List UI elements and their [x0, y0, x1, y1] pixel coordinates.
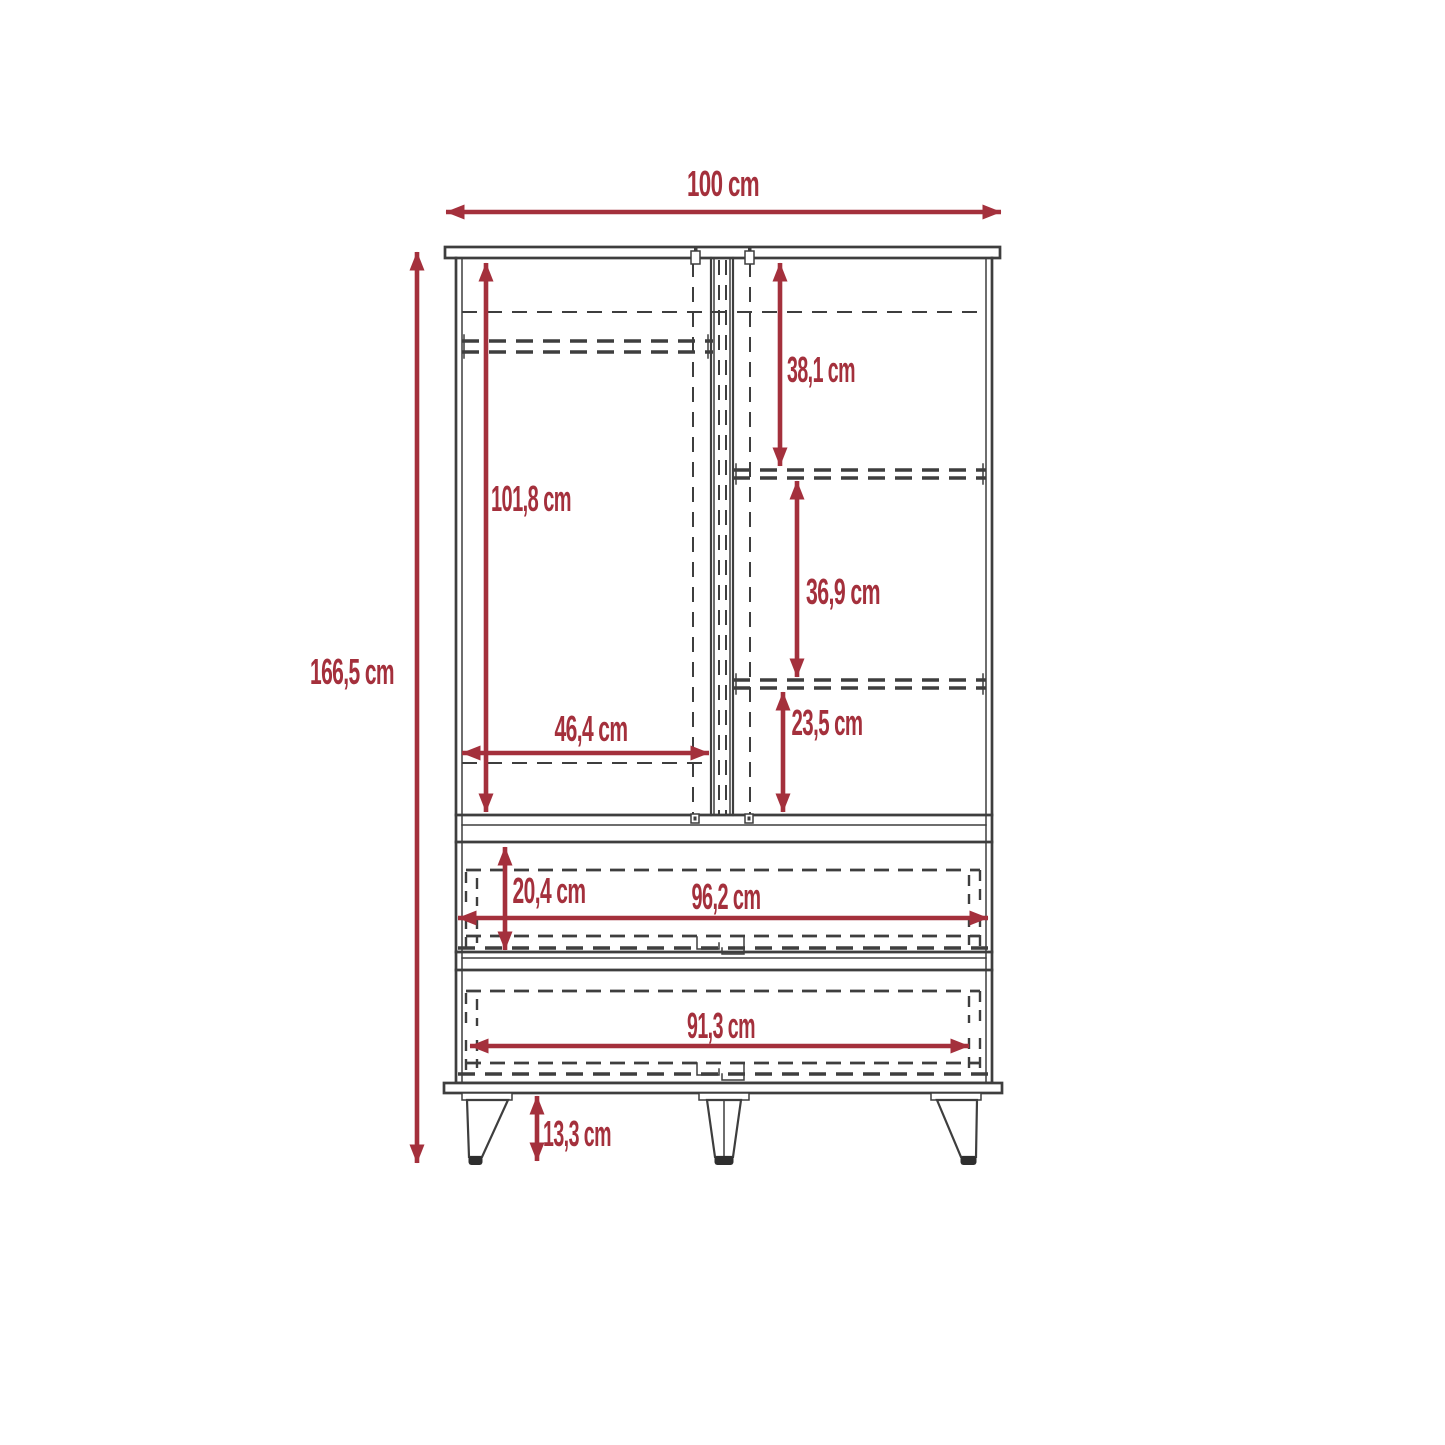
drawer-slide-icon — [722, 1063, 744, 1080]
right-shelf-lower — [733, 674, 986, 694]
right-shelf-upper — [733, 464, 986, 484]
dim-drawer-opening-width-label: 96,2 cm — [692, 876, 761, 917]
top-panel — [445, 247, 1000, 258]
doors-section — [462, 246, 986, 823]
dim-total-height-label: 166,5 cm — [310, 651, 394, 692]
leg-left — [467, 1100, 508, 1157]
dim-door-interior-height-label: 101,8 cm — [491, 478, 571, 519]
dim-upper-right-shelf-height: 38,1 cm — [780, 263, 855, 466]
dim-drawer-height: 20,4 cm — [505, 847, 586, 950]
dim-middle-right-shelf-height-label: 36,9 cm — [806, 571, 880, 612]
hanging-rod — [462, 335, 713, 358]
diagram-canvas: 100 cm 166,5 cm 101,8 cm 38,1 cm 36,9 cm… — [0, 0, 1445, 1445]
dim-upper-right-shelf-height-label: 38,1 cm — [787, 349, 855, 390]
hinge-bottom-right — [745, 814, 753, 823]
leg-foot-right — [961, 1156, 977, 1165]
dim-lower-drawer-front-width-label: 91,3 cm — [687, 1005, 755, 1046]
leg-right — [937, 1100, 977, 1157]
furniture-dimension-diagram: 100 cm 166,5 cm 101,8 cm 38,1 cm 36,9 cm… — [0, 0, 1445, 1445]
dim-leg-height-label: 13,3 cm — [543, 1113, 611, 1154]
dim-total-width: 100 cm — [446, 163, 1001, 212]
leg-foot-left — [469, 1156, 483, 1165]
dim-drawer-height-label: 20,4 cm — [513, 870, 586, 911]
leg-foot-center — [715, 1156, 734, 1165]
cabinet-body — [444, 247, 1002, 1093]
dim-middle-right-shelf-height: 36,9 cm — [797, 481, 880, 677]
dim-total-height: 166,5 cm — [310, 252, 417, 1163]
dim-total-width-label: 100 cm — [687, 163, 759, 204]
plinth — [444, 1083, 1002, 1093]
dim-left-compartment-width-label: 46,4 cm — [555, 708, 628, 749]
dim-leg-height: 13,3 cm — [537, 1096, 611, 1161]
legs — [462, 1093, 981, 1165]
dim-lower-right-shelf-height-label: 23,5 cm — [792, 702, 863, 743]
dim-lower-drawer-front-width: 91,3 cm — [470, 1005, 969, 1046]
hinge-bottom-left — [691, 814, 699, 823]
dim-left-compartment-width: 46,4 cm — [462, 708, 709, 753]
dim-lower-right-shelf-height: 23,5 cm — [783, 692, 863, 812]
